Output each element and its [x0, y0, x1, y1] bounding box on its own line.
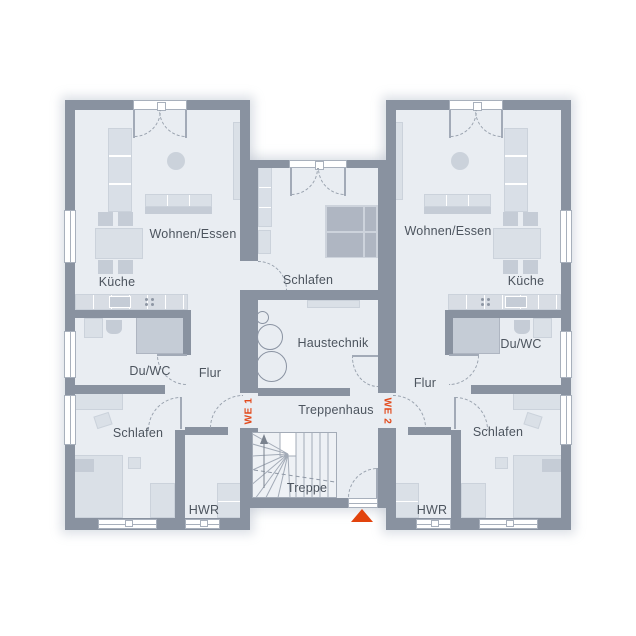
window — [64, 210, 76, 263]
pillow-middle — [365, 207, 376, 231]
room-label-flur-unit1: Flur — [199, 366, 221, 380]
terrace-door-unit2 — [449, 100, 503, 110]
room-label-wohnen-essen-unit1: Wohnen/Essen — [150, 227, 237, 241]
chair-unit1 — [118, 260, 133, 274]
mattress-middle — [327, 233, 363, 257]
sofa-back-unit2 — [424, 207, 491, 214]
pillow-middle — [365, 233, 376, 257]
shelf-unit-unit2 — [504, 128, 528, 212]
dresser-unit2 — [461, 483, 486, 518]
floor-plan: Wohnen/Essen Küche Du/WC Flur Schlafen H… — [0, 0, 636, 636]
window — [560, 331, 572, 378]
chair-unit1 — [118, 212, 133, 226]
wall — [175, 430, 185, 518]
room-label-treppenhaus: Treppenhaus — [298, 403, 373, 417]
room-label-schlafen-middle: Schlafen — [283, 273, 333, 287]
room-label-hwr-unit1: HWR — [189, 503, 219, 517]
room-label-haustechnik: Haustechnik — [298, 336, 369, 350]
unit-label-we1: WE 1 — [244, 398, 255, 425]
nightstand-unit1 — [128, 457, 141, 469]
sofa-back-unit1 — [145, 207, 212, 214]
window — [64, 331, 76, 378]
shower-unit2 — [451, 316, 500, 354]
window — [479, 519, 538, 529]
tank-circle — [257, 324, 283, 350]
washbasin-unit2 — [533, 318, 552, 338]
wall — [446, 310, 571, 318]
room-label-treppe: Treppe — [287, 481, 327, 495]
wardrobe-unit2 — [513, 392, 566, 410]
wall — [65, 110, 75, 530]
room-label-wohnen-essen-unit2: Wohnen/Essen — [405, 224, 492, 238]
window — [560, 210, 572, 263]
wall — [183, 310, 191, 355]
window — [416, 519, 451, 529]
tank-circle — [256, 351, 287, 382]
washer-unit2 — [393, 483, 419, 518]
shower-unit1 — [136, 316, 185, 354]
wall — [471, 385, 571, 394]
pillow-unit1 — [74, 459, 94, 472]
sideboard-unit2 — [395, 122, 403, 200]
room-label-duwc-unit2: Du/WC — [500, 337, 541, 351]
toilet-unit2 — [514, 320, 530, 334]
shelf-haustechnik — [307, 300, 360, 308]
stove-unit2 — [478, 297, 494, 308]
wall — [445, 310, 453, 355]
lamp-circle-unit1 — [167, 152, 185, 170]
door-leaf — [157, 354, 187, 356]
wall — [240, 110, 250, 530]
dresser-unit1 — [150, 483, 175, 518]
room-label-schlafen-unit1: Schlafen — [113, 426, 163, 440]
sofa-seat-unit2 — [424, 194, 491, 207]
entrance-marker-icon — [351, 509, 373, 522]
wall — [65, 310, 190, 318]
wall — [65, 385, 165, 394]
toilet-unit1 — [106, 320, 122, 334]
room-label-schlafen-unit2: Schlafen — [473, 425, 523, 439]
wall — [185, 427, 228, 435]
chair-unit2 — [523, 260, 538, 274]
dining-table-unit1 — [95, 228, 143, 259]
chair-unit2 — [523, 212, 538, 226]
door-opening-haustechnik — [350, 388, 378, 396]
door-leaf — [449, 354, 479, 356]
chair-unit1 — [98, 212, 113, 226]
wall — [258, 290, 378, 300]
washbasin-unit1 — [84, 318, 103, 338]
window — [185, 519, 220, 529]
window — [98, 519, 157, 529]
terrace-door-unit1 — [133, 100, 187, 110]
room-label-hwr-unit2: HWR — [417, 503, 447, 517]
chair-unit1 — [98, 260, 113, 274]
unit-label-we2: WE 2 — [382, 398, 393, 425]
wall — [408, 427, 451, 435]
window — [560, 395, 572, 445]
chair-unit2 — [503, 260, 518, 274]
room-label-duwc-unit1: Du/WC — [129, 364, 170, 378]
dining-table-unit2 — [493, 228, 541, 259]
sofa-seat-unit1 — [145, 194, 212, 207]
shelf-unit-unit1 — [108, 128, 132, 212]
room-label-kueche-unit2: Küche — [508, 274, 544, 288]
kitchen-sink-unit1 — [109, 296, 131, 308]
wall — [561, 110, 571, 530]
room-label-kueche-unit1: Küche — [99, 275, 135, 289]
window — [64, 395, 76, 445]
tank-circle — [256, 311, 269, 324]
terrace-door-middle — [289, 160, 347, 168]
kitchen-sink-unit2 — [505, 296, 527, 308]
lamp-circle-unit2 — [451, 152, 469, 170]
mattress-middle — [327, 207, 363, 231]
stove-unit1 — [142, 297, 158, 308]
cabinet-middle — [258, 230, 271, 254]
nightstand-unit2 — [495, 457, 508, 469]
wardrobe-unit1 — [70, 392, 123, 410]
wall — [451, 430, 461, 518]
door-opening-middle-bedroom — [240, 261, 258, 290]
wall — [378, 168, 386, 508]
room-label-flur-unit2: Flur — [414, 376, 436, 390]
chair-unit2 — [503, 212, 518, 226]
entrance-door — [348, 498, 378, 508]
kitchen-counter-unit1 — [75, 294, 188, 310]
pillow-unit2 — [542, 459, 562, 472]
wall — [386, 110, 396, 530]
wardrobe-middle — [258, 167, 272, 227]
